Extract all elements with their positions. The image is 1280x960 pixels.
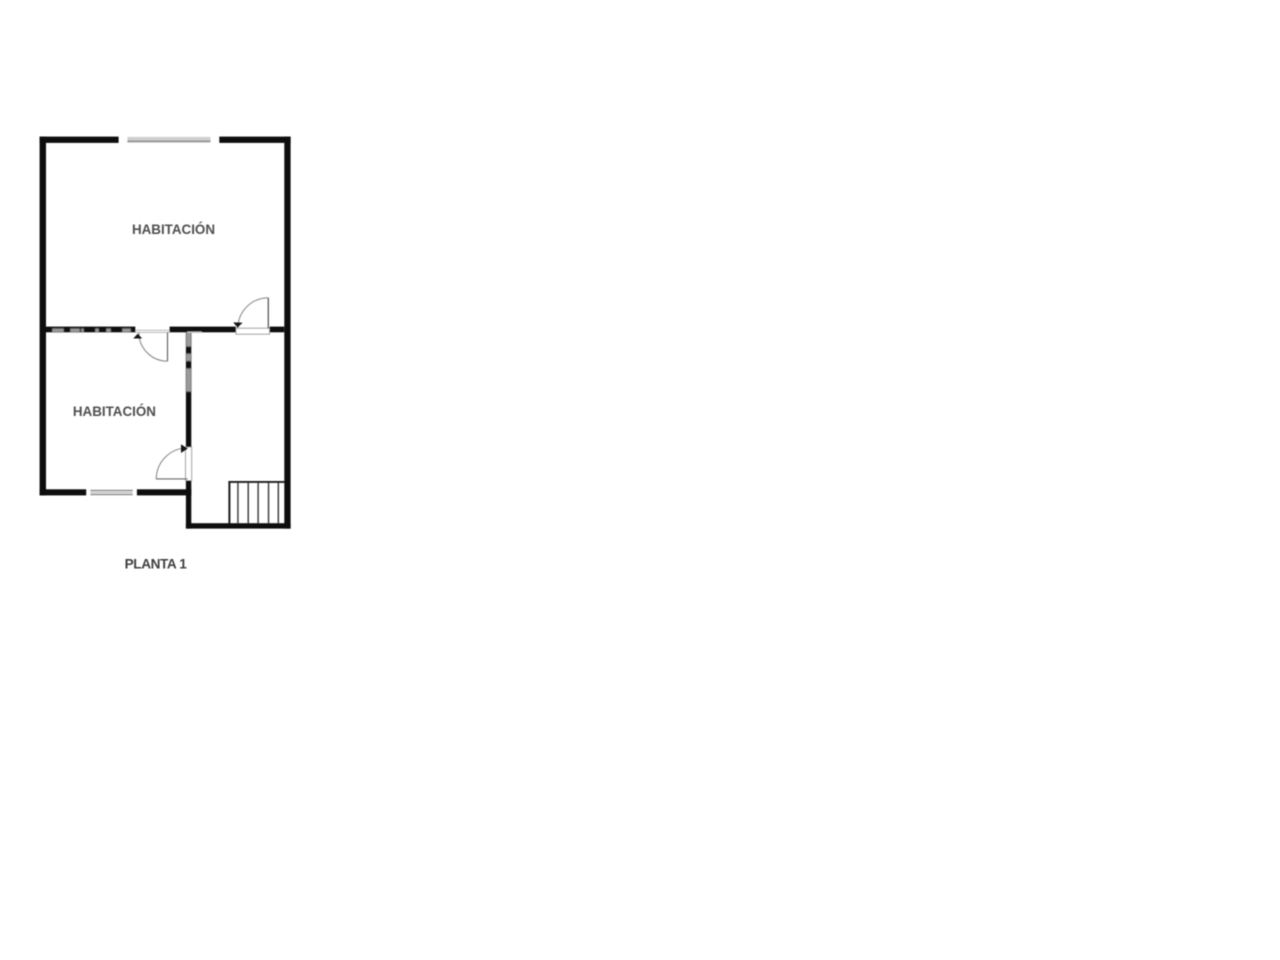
svg-text:HABITACIÓN: HABITACIÓN — [132, 222, 215, 237]
svg-text:HABITACIÓN: HABITACIÓN — [73, 404, 156, 419]
svg-text:PLANTA 1: PLANTA 1 — [125, 556, 188, 571]
